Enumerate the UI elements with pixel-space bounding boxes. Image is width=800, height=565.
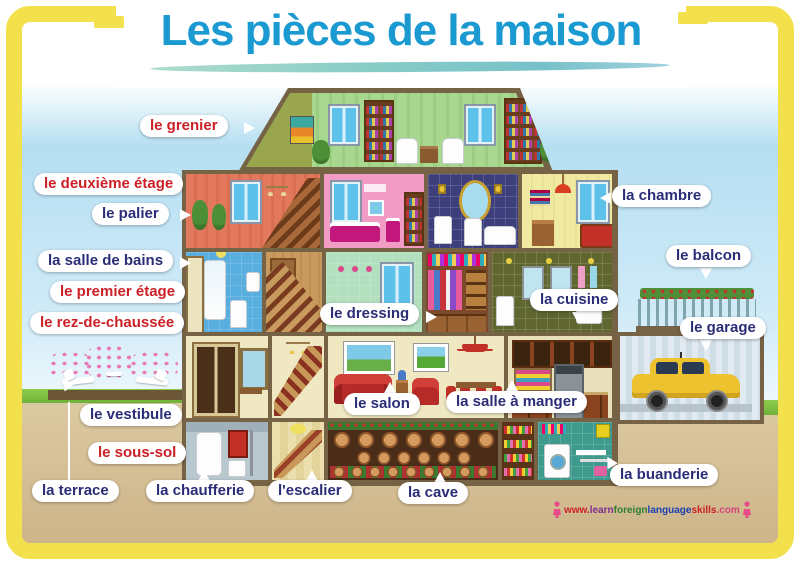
label-pointer (244, 122, 255, 134)
desk (532, 220, 554, 246)
ironing-board (576, 450, 606, 455)
label-pointer (180, 257, 191, 269)
armchair-white (442, 138, 464, 164)
painting-landscape (344, 342, 394, 374)
room-chambre (522, 174, 612, 248)
poster-title: Les pièces de la maison (116, 6, 686, 56)
water-tank (228, 460, 246, 477)
stick-figure-icon (552, 501, 562, 519)
control-panel (228, 430, 248, 458)
label-premier-etage: le premier étage (50, 281, 185, 303)
wine-barrels-row (330, 430, 496, 450)
label-pointer (384, 382, 396, 393)
sink (246, 272, 260, 292)
label-chaufferie: la chaufferie (146, 480, 254, 502)
label-pointer (180, 209, 191, 221)
attic-window (330, 106, 358, 144)
title-band: Les pièces de la maison (116, 0, 686, 88)
ceiling-lamp (555, 184, 571, 193)
bottle-shelf (502, 422, 534, 480)
poster: Les pièces de la maison le grenier le de… (0, 0, 800, 565)
room-palier (186, 174, 320, 248)
chandelier-cord (474, 336, 476, 344)
laundry-basket (594, 466, 607, 476)
label-palier: le palier (92, 203, 169, 225)
label-terrace: la terrace (32, 480, 119, 502)
bottles (504, 426, 532, 434)
stick-figure-icon (742, 501, 752, 519)
towel-pink (578, 266, 585, 288)
toilet (230, 300, 247, 328)
window (232, 182, 260, 222)
room-bathroom-upper (428, 174, 518, 248)
label-buanderie: la buanderie (610, 464, 718, 486)
label-salle-de-bains: la salle de bains (38, 250, 173, 272)
basement-wall-strip (186, 422, 268, 432)
room-buanderie (538, 422, 612, 480)
label-pointer (700, 340, 712, 351)
title-dash-left (94, 16, 124, 28)
label-pointer (426, 311, 437, 323)
label-cave: la cave (398, 482, 468, 504)
bottles (504, 454, 532, 462)
label-chambre: la chambre (612, 185, 711, 207)
pipe (250, 430, 253, 476)
hall-mirror (240, 348, 268, 390)
terrace (48, 344, 188, 406)
label-pointer (506, 380, 518, 391)
car-wheel (706, 390, 728, 412)
staircase (274, 346, 322, 416)
label-cuisine: la cuisine (530, 289, 618, 311)
dish-shelf (514, 368, 552, 392)
vine-garland (328, 422, 498, 430)
label-dressing: le dressing (320, 303, 419, 325)
label-grenier: le grenier (140, 115, 228, 137)
title-dash-right (678, 12, 708, 24)
house (182, 170, 618, 486)
label-sous-sol: le sous-sol (88, 442, 186, 464)
wall-sconce (494, 184, 502, 194)
wall-sconce (438, 184, 446, 194)
plant (192, 200, 208, 230)
wine-barrels-row (354, 450, 472, 466)
label-balcon: le balcon (666, 245, 751, 267)
bookshelf (404, 192, 424, 246)
bed (330, 222, 380, 242)
closet-shelves (466, 270, 486, 310)
front-door (194, 344, 238, 416)
wall-lamp (266, 186, 288, 196)
attic-window (466, 106, 494, 144)
table-lamp (398, 370, 406, 380)
watermark: www.learnforeignlanguageskills.com (552, 501, 752, 519)
room-salle-de-bains (186, 252, 262, 332)
red-chandelier (462, 344, 488, 352)
pedestal-sink (464, 218, 482, 246)
bottles (504, 440, 532, 448)
laundry-shelf (542, 424, 566, 434)
bed (580, 224, 612, 248)
car-wheel (646, 390, 668, 412)
lamp-cord (562, 174, 564, 184)
toilet (434, 216, 452, 244)
wall-banner (290, 116, 314, 144)
basement-light (290, 424, 306, 434)
wall-shelf (364, 184, 386, 192)
ceiling-light (546, 258, 552, 264)
bathtub (484, 226, 516, 245)
room-bedroom-pink (324, 174, 424, 248)
side-table (420, 146, 438, 163)
label-escalier: l'escalier (268, 480, 352, 502)
armchair-white (396, 138, 418, 164)
garage-floor (620, 404, 752, 412)
label-pointer (572, 312, 584, 323)
painting-small (414, 344, 448, 371)
ceiling-light (588, 258, 594, 264)
coat-hook (338, 266, 344, 272)
picture-frame (368, 200, 384, 216)
wall-shelf (530, 190, 550, 206)
detergent-box (596, 424, 610, 438)
plant (212, 204, 226, 230)
room-garage (616, 332, 764, 424)
room-vestibule (186, 336, 268, 418)
window (332, 182, 360, 222)
label-rez-de-chaussee: le rez-de-chaussée (30, 312, 184, 334)
room-stairs-ground (272, 336, 324, 418)
folded-clothes-shelf (428, 254, 486, 266)
window (382, 264, 412, 306)
label-vestibule: le vestibule (80, 404, 182, 426)
towel-blue (590, 266, 597, 288)
dresser (386, 218, 400, 242)
hanging-clothes (428, 270, 462, 310)
bottles (504, 468, 532, 476)
bookshelf (364, 100, 394, 162)
ceiling-light (506, 258, 512, 264)
console-table (240, 388, 262, 394)
coat-hook (366, 266, 372, 272)
label-garage: le garage (680, 317, 766, 339)
label-salle-a-manger: la salle à manger (446, 391, 587, 413)
balcony-flowers (640, 288, 754, 299)
toilet (496, 296, 514, 326)
label-salon: le salon (344, 393, 420, 415)
label-pointer-line (68, 402, 70, 480)
room-stairs-upper (266, 252, 322, 332)
washer-door (550, 454, 566, 470)
plant (312, 140, 330, 164)
terrace-base (48, 390, 188, 400)
wine-barrels-row (330, 466, 496, 478)
lower-cabinets (584, 392, 608, 418)
watermark-url: www.learnforeignlanguageskills.com (564, 505, 740, 516)
ceiling-light (216, 252, 226, 258)
label-pointer (700, 268, 712, 279)
room-cave (328, 422, 498, 480)
coat-hook (352, 266, 358, 272)
label-pointer (600, 192, 611, 204)
terrace-table (106, 372, 122, 376)
label-deuxieme-etage: le deuxième étage (34, 173, 183, 195)
mirror (459, 180, 491, 222)
shower (204, 260, 226, 320)
